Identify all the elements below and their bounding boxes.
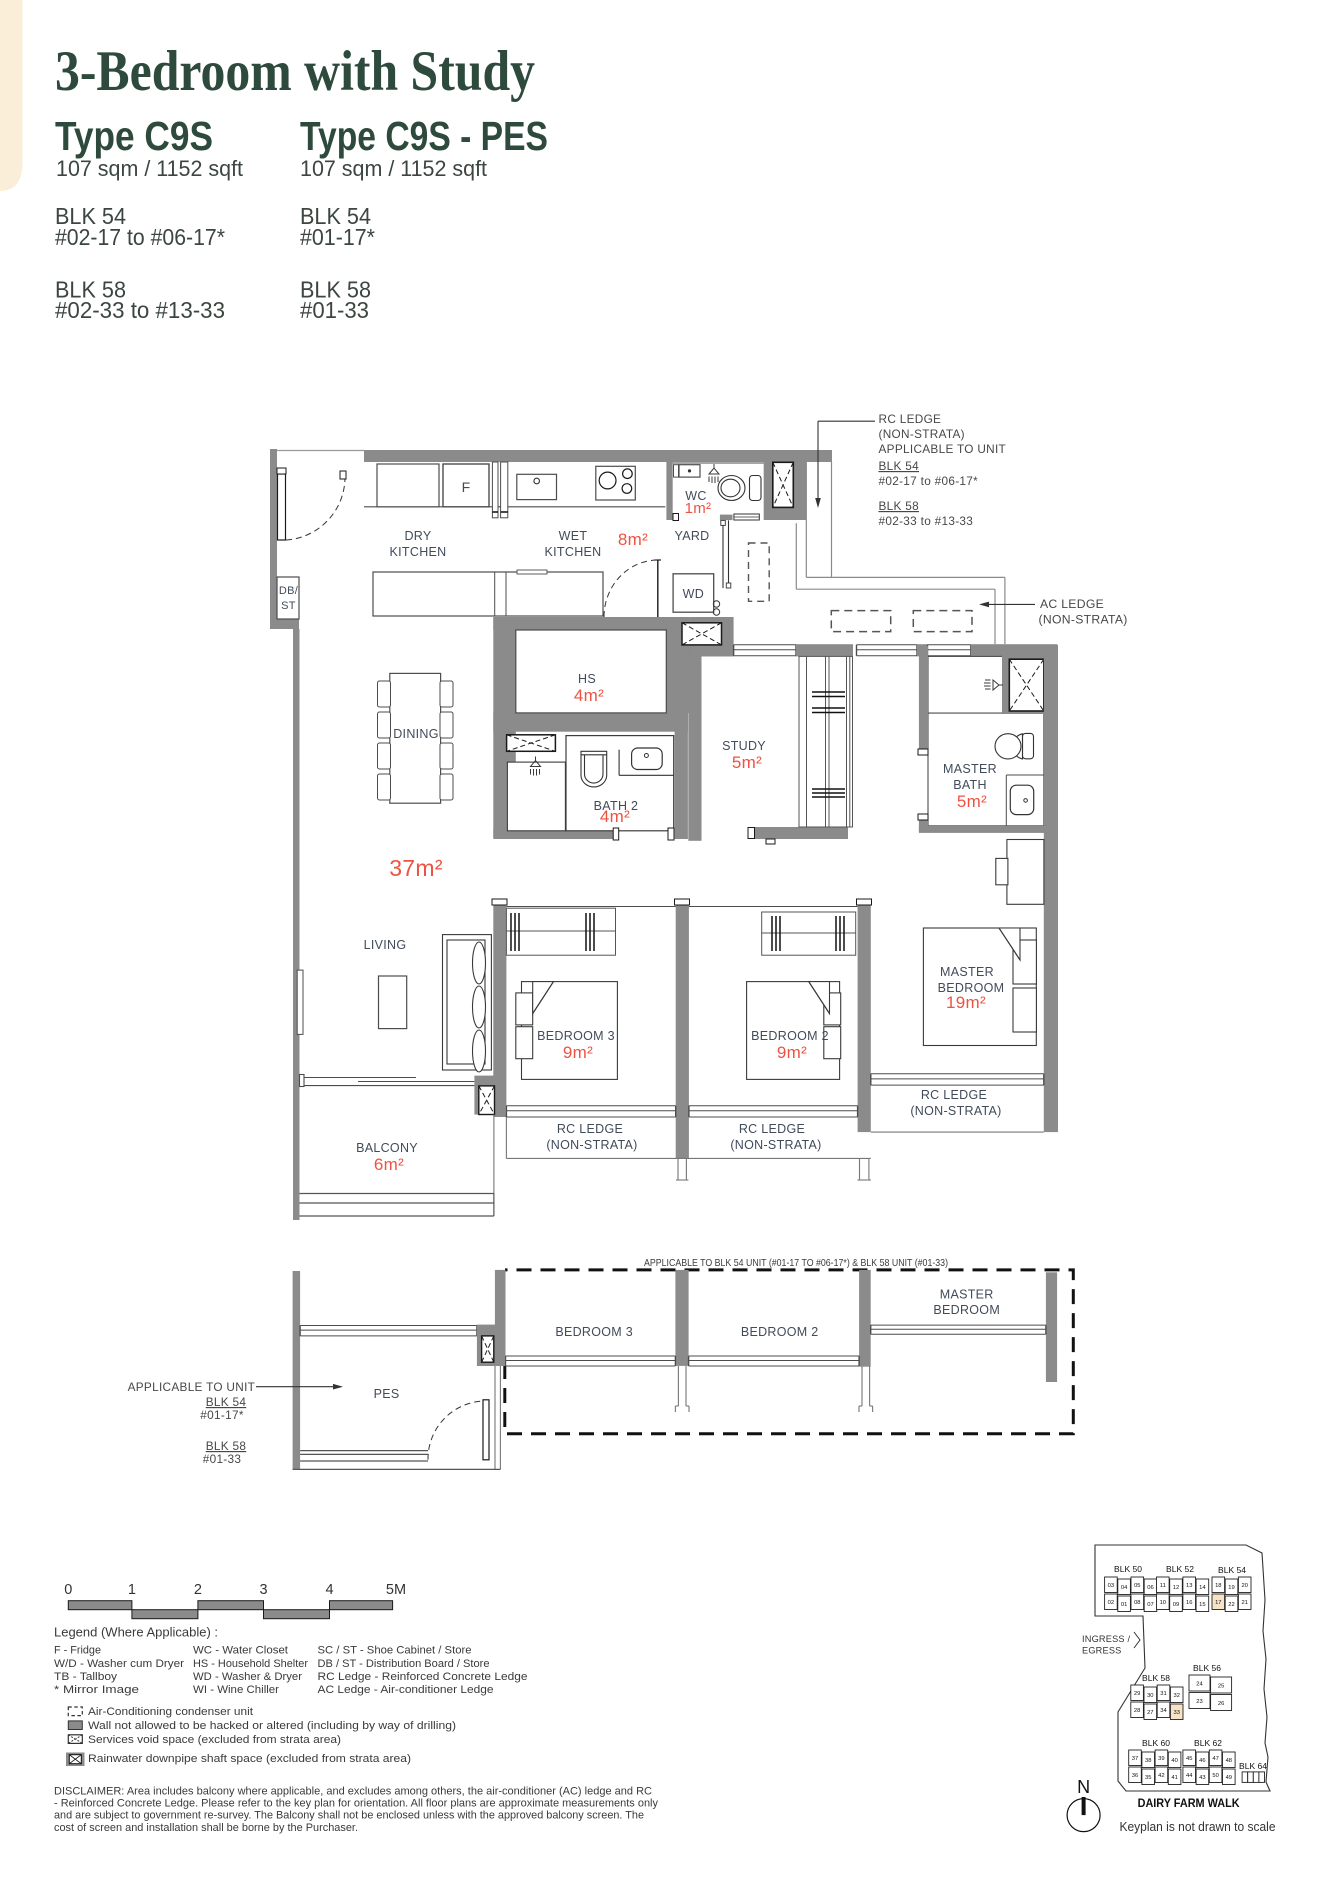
svg-text:MASTER: MASTER (943, 762, 997, 776)
svg-text:34: 34 (1160, 1708, 1167, 1714)
svg-text:45: 45 (1186, 1756, 1192, 1762)
svg-text:ST: ST (281, 600, 296, 612)
svg-text:08: 08 (1134, 1600, 1140, 1606)
svg-text:10: 10 (1160, 1600, 1166, 1606)
svg-text:19m²: 19m² (946, 993, 986, 1012)
svg-text:DINING: DINING (393, 727, 439, 741)
svg-text:21: 21 (1241, 1600, 1247, 1606)
svg-text:BLK 58: BLK 58 (206, 1439, 247, 1453)
svg-text:17: 17 (1215, 1600, 1221, 1606)
svg-text:43: 43 (1199, 1775, 1205, 1781)
svg-text:#01-17*: #01-17* (200, 1408, 244, 1422)
svg-text:6m²: 6m² (374, 1155, 404, 1174)
svg-text:06: 06 (1147, 1585, 1153, 1591)
svg-text:Rainwater downpipe shaft space: Rainwater downpipe shaft space (excluded… (88, 1753, 411, 1765)
svg-text:SC / ST - Shoe Cabinet / Store: SC / ST - Shoe Cabinet / Store (318, 1645, 472, 1657)
svg-text:01: 01 (1121, 1602, 1127, 1608)
svg-text:38: 38 (1145, 1758, 1151, 1764)
svg-text:BLK 62: BLK 62 (1194, 1738, 1222, 1748)
svg-text:Air-Conditioning condenser uni: Air-Conditioning condenser unit (88, 1706, 254, 1718)
svg-text:2: 2 (194, 1582, 202, 1598)
svg-text:Wall not allowed to be hacked: Wall not allowed to be hacked or altered… (88, 1720, 456, 1732)
svg-text:BLK 54: BLK 54 (206, 1395, 247, 1409)
svg-text:APPLICABLE TO UNIT: APPLICABLE TO UNIT (128, 1380, 256, 1394)
svg-text:BEDROOM 2: BEDROOM 2 (741, 1325, 819, 1339)
svg-text:23: 23 (1196, 1699, 1202, 1705)
svg-text:YARD: YARD (674, 529, 709, 543)
svg-text:(NON-STRATA): (NON-STRATA) (879, 427, 965, 441)
svg-text:- Reinforced Concrete Ledge. P: - Reinforced Concrete Ledge. Please refe… (54, 1798, 658, 1810)
svg-text:44: 44 (1186, 1773, 1193, 1779)
svg-text:37m²: 37m² (389, 855, 443, 881)
svg-text:8m²: 8m² (618, 530, 648, 549)
svg-text:49: 49 (1226, 1775, 1232, 1781)
svg-text:RC LEDGE: RC LEDGE (921, 1088, 987, 1102)
svg-text:05: 05 (1134, 1583, 1140, 1589)
svg-text:RC LEDGE: RC LEDGE (557, 1122, 623, 1136)
svg-text:BLK 50: BLK 50 (1114, 1564, 1142, 1574)
svg-text:INGRESS /: INGRESS / (1082, 1634, 1131, 1644)
svg-text:MASTER: MASTER (940, 965, 994, 979)
svg-text:BEDROOM 3: BEDROOM 3 (555, 1325, 633, 1339)
svg-text:28: 28 (1134, 1708, 1140, 1714)
svg-text:BLK 58: BLK 58 (1142, 1673, 1170, 1683)
svg-text:5m²: 5m² (732, 753, 762, 772)
svg-text:27: 27 (1147, 1710, 1153, 1716)
svg-text:F - Fridge: F - Fridge (54, 1645, 101, 1657)
svg-text:#02-17 to #06-17*: #02-17 to #06-17* (879, 474, 979, 488)
svg-text:F: F (462, 479, 471, 495)
svg-text:BEDROOM 3: BEDROOM 3 (537, 1029, 615, 1043)
svg-text:33: 33 (1173, 1710, 1179, 1716)
svg-text:19: 19 (1228, 1585, 1234, 1591)
svg-text:#02-33 to #13-33: #02-33 to #13-33 (55, 297, 225, 323)
svg-text:12: 12 (1173, 1585, 1179, 1591)
svg-text:5m²: 5m² (957, 792, 987, 811)
svg-text:WD: WD (683, 587, 704, 601)
svg-text:16: 16 (1186, 1600, 1192, 1606)
svg-text:4m²: 4m² (574, 686, 604, 705)
svg-text:46: 46 (1199, 1758, 1205, 1764)
svg-text:Type C9S: Type C9S (55, 113, 213, 159)
svg-text:#02-33 to #13-33: #02-33 to #13-33 (879, 514, 974, 528)
svg-text:DAIRY FARM WALK: DAIRY FARM WALK (1138, 1798, 1241, 1810)
svg-text:(NON-STRATA): (NON-STRATA) (730, 1138, 821, 1152)
svg-text:BLK 54: BLK 54 (1218, 1565, 1246, 1575)
svg-text:5M: 5M (386, 1582, 406, 1598)
svg-text:Services void space (excluded: Services void space (excluded from strat… (88, 1734, 341, 1746)
svg-text:KITCHEN: KITCHEN (390, 545, 447, 559)
svg-text:RC Ledge - Reinforced Concrete: RC Ledge - Reinforced Concrete Ledge (318, 1671, 528, 1683)
svg-text:30: 30 (1147, 1693, 1153, 1699)
svg-text:42: 42 (1158, 1773, 1164, 1779)
svg-text:09: 09 (1173, 1602, 1179, 1608)
svg-text:25: 25 (1218, 1684, 1224, 1690)
svg-text:DB/: DB/ (279, 585, 299, 597)
svg-text:40: 40 (1171, 1758, 1177, 1764)
svg-text:DISCLAIMER: Area includes balc: DISCLAIMER: Area includes balcony where … (54, 1786, 652, 1798)
svg-text:AC Ledge - Air-conditioner Led: AC Ledge - Air-conditioner Ledge (318, 1684, 494, 1696)
svg-text:HS: HS (578, 672, 596, 686)
svg-text:(NON-STRATA): (NON-STRATA) (1039, 613, 1128, 627)
svg-text:04: 04 (1121, 1585, 1128, 1591)
svg-text:and are subject to government: and are subject to government re-survey.… (54, 1810, 644, 1822)
svg-text:STUDY: STUDY (722, 739, 766, 753)
svg-text:(NON-STRATA): (NON-STRATA) (910, 1104, 1001, 1118)
svg-text:BLK 54: BLK 54 (879, 459, 920, 473)
svg-text:20: 20 (1241, 1583, 1247, 1589)
svg-text:24: 24 (1196, 1682, 1203, 1688)
svg-text:#01-33: #01-33 (300, 297, 369, 323)
svg-text:41: 41 (1171, 1775, 1177, 1781)
svg-text:BLK 60: BLK 60 (1142, 1738, 1170, 1748)
svg-text:31: 31 (1160, 1691, 1166, 1697)
svg-text:11: 11 (1160, 1583, 1166, 1589)
svg-text:EGRESS: EGRESS (1082, 1646, 1122, 1656)
svg-text:(NON-STRATA): (NON-STRATA) (546, 1138, 637, 1152)
svg-text:W/D - Washer cum Dryer: W/D - Washer cum Dryer (54, 1658, 184, 1670)
svg-text:LIVING: LIVING (364, 938, 407, 952)
svg-text:32: 32 (1173, 1693, 1179, 1699)
svg-text:26: 26 (1218, 1701, 1224, 1707)
svg-text:* Mirror Image: * Mirror Image (54, 1684, 139, 1696)
svg-text:MASTER: MASTER (940, 1288, 994, 1302)
svg-text:07: 07 (1147, 1602, 1153, 1608)
svg-text:3-Bedroom with Study: 3-Bedroom with Study (55, 40, 535, 103)
svg-text:cost of screen and installatio: cost of screen and installation shall be… (54, 1822, 358, 1834)
svg-text:APPLICABLE TO BLK 54 UNIT (#01: APPLICABLE TO BLK 54 UNIT (#01-17 TO #06… (644, 1257, 948, 1269)
svg-text:BEDROOM 2: BEDROOM 2 (751, 1029, 829, 1043)
svg-text:29: 29 (1134, 1691, 1140, 1697)
svg-text:107 sqm / 1152 sqft: 107 sqm / 1152 sqft (300, 156, 488, 181)
svg-text:13: 13 (1186, 1583, 1192, 1589)
svg-text:PES: PES (374, 1387, 400, 1401)
svg-text:BLK 64: BLK 64 (1239, 1761, 1267, 1771)
svg-text:3: 3 (259, 1582, 267, 1598)
svg-text:4m²: 4m² (600, 807, 630, 826)
svg-text:DB / ST - Distribution Board /: DB / ST - Distribution Board / Store (318, 1658, 490, 1670)
svg-text:WET: WET (559, 529, 588, 543)
svg-text:N: N (1077, 1777, 1090, 1797)
svg-text:9m²: 9m² (563, 1043, 593, 1062)
svg-text:9m²: 9m² (777, 1043, 807, 1062)
svg-text:1m²: 1m² (685, 500, 712, 517)
svg-text:#01-17*: #01-17* (300, 224, 375, 250)
svg-text:WD - Washer & Dryer: WD - Washer & Dryer (193, 1671, 302, 1683)
svg-text:0: 0 (64, 1582, 72, 1598)
svg-text:TB - Tallboy: TB - Tallboy (54, 1671, 117, 1683)
svg-text:15: 15 (1199, 1602, 1205, 1608)
svg-text:50: 50 (1212, 1773, 1218, 1779)
svg-text:14: 14 (1199, 1585, 1206, 1591)
svg-text:02: 02 (1108, 1600, 1114, 1606)
svg-text:BLK 56: BLK 56 (1193, 1663, 1221, 1673)
svg-text:48: 48 (1226, 1758, 1232, 1764)
svg-text:BLK 52: BLK 52 (1166, 1564, 1194, 1574)
svg-text:107 sqm / 1152 sqft: 107 sqm / 1152 sqft (56, 156, 244, 181)
svg-text:22: 22 (1228, 1602, 1234, 1608)
svg-text:47: 47 (1212, 1756, 1218, 1762)
svg-text:DRY: DRY (404, 529, 431, 543)
svg-text:WI - Wine Chiller: WI - Wine Chiller (193, 1684, 279, 1696)
svg-text:Keyplan is not drawn to scale: Keyplan is not drawn to scale (1120, 1820, 1276, 1834)
svg-text:BEDROOM: BEDROOM (933, 1303, 1000, 1317)
svg-text:1: 1 (128, 1582, 136, 1598)
svg-text:RC LEDGE: RC LEDGE (739, 1122, 805, 1136)
svg-text:Legend (Where Applicable) :: Legend (Where Applicable) : (54, 1626, 218, 1640)
svg-text:KITCHEN: KITCHEN (545, 545, 602, 559)
svg-text:HS - Household Shelter: HS - Household Shelter (193, 1658, 308, 1670)
svg-text:36: 36 (1132, 1773, 1138, 1779)
svg-text:#02-17 to #06-17*: #02-17 to #06-17* (55, 224, 225, 250)
svg-text:BLK 58: BLK 58 (879, 499, 920, 513)
svg-text:4: 4 (325, 1582, 333, 1598)
svg-text:37: 37 (1132, 1756, 1138, 1762)
svg-text:BATH: BATH (953, 778, 987, 792)
svg-text:AC LEDGE: AC LEDGE (1040, 597, 1104, 611)
svg-text:RC LEDGE: RC LEDGE (879, 412, 942, 426)
svg-text:03: 03 (1108, 1583, 1114, 1589)
svg-text:18: 18 (1215, 1583, 1221, 1589)
svg-text:WC - Water Closet: WC - Water Closet (193, 1645, 289, 1657)
svg-text:#01-33: #01-33 (203, 1452, 242, 1466)
svg-text:APPLICABLE TO UNIT: APPLICABLE TO UNIT (879, 442, 1007, 456)
svg-text:Type C9S - PES: Type C9S - PES (300, 113, 548, 159)
svg-text:39: 39 (1158, 1756, 1164, 1762)
svg-text:BALCONY: BALCONY (356, 1141, 418, 1155)
svg-text:35: 35 (1145, 1775, 1151, 1781)
